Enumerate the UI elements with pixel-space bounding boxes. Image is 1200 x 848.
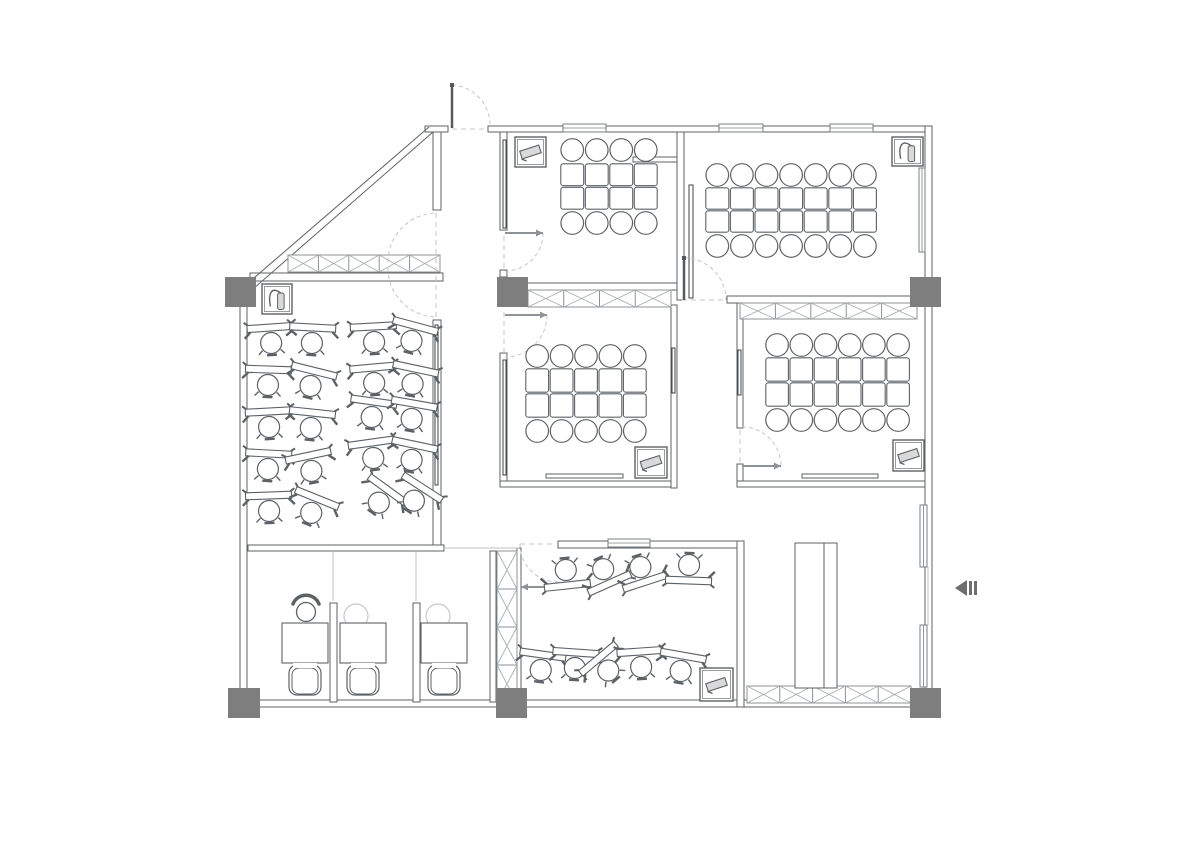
desk-unit — [539, 555, 594, 594]
chair — [550, 345, 573, 368]
chair — [561, 139, 584, 162]
office-desk — [340, 623, 386, 663]
desk-unit — [242, 488, 295, 524]
chair — [790, 409, 813, 432]
meeting-table — [561, 139, 657, 235]
desk-unit — [242, 404, 296, 441]
door-swing-arc — [520, 544, 558, 582]
chair — [814, 334, 837, 357]
meeting-table — [706, 164, 877, 258]
door-swing-arc — [742, 427, 781, 466]
chair — [804, 235, 827, 258]
whiteboard — [802, 474, 878, 478]
desk-unit — [347, 319, 401, 356]
casework-run — [288, 255, 440, 272]
office-chair — [289, 663, 321, 695]
desk-unit — [242, 362, 295, 398]
chair — [550, 420, 573, 443]
chair — [575, 420, 598, 443]
desk-unit — [285, 320, 339, 357]
column — [496, 688, 527, 718]
chair — [575, 345, 598, 368]
chair — [634, 212, 657, 235]
fire-extinguisher-box — [892, 137, 923, 166]
chair — [854, 235, 877, 258]
office-desk — [421, 623, 467, 663]
chair — [829, 164, 852, 187]
chair — [526, 420, 549, 443]
chair — [838, 409, 861, 432]
chair — [585, 139, 608, 162]
chair — [731, 235, 754, 258]
chair — [829, 235, 852, 258]
tv-box — [515, 137, 546, 167]
meeting-table — [526, 345, 646, 443]
chair — [599, 420, 622, 443]
column — [225, 277, 256, 307]
casework-run — [528, 290, 671, 307]
doors — [388, 83, 781, 591]
door-swing-arc — [505, 233, 543, 271]
tv-box — [700, 668, 733, 701]
chair — [766, 334, 789, 357]
chair — [755, 164, 778, 187]
chair — [854, 164, 877, 187]
entry-arrow — [955, 580, 977, 596]
chair — [706, 235, 729, 258]
desk-unit — [662, 552, 715, 588]
column — [228, 688, 260, 718]
chair — [526, 345, 549, 368]
chair — [863, 409, 886, 432]
column — [910, 688, 941, 718]
chair — [706, 164, 729, 187]
whiteboard — [546, 474, 623, 478]
chair — [561, 212, 584, 235]
door-swing-arc — [452, 85, 490, 126]
tv-box — [635, 447, 667, 478]
desk-unit — [284, 403, 339, 442]
chair — [887, 334, 910, 357]
chair — [610, 139, 633, 162]
casework-run — [497, 551, 517, 703]
office-chair — [428, 663, 460, 695]
casework-run — [740, 303, 917, 319]
chair — [755, 235, 778, 258]
chair — [766, 409, 789, 432]
offices — [282, 595, 467, 695]
chair — [624, 420, 647, 443]
shaft — [795, 543, 837, 688]
desk-unit — [574, 637, 636, 696]
desk-unit — [614, 643, 668, 681]
chair — [585, 212, 608, 235]
chair — [838, 334, 861, 357]
column — [497, 277, 528, 307]
chair — [634, 139, 657, 162]
chair — [804, 164, 827, 187]
phone — [293, 595, 319, 621]
floor-plan-svg — [0, 0, 1200, 848]
chair — [814, 409, 837, 432]
chair — [780, 235, 803, 258]
chair — [731, 164, 754, 187]
office-desk — [282, 623, 328, 663]
fire-extinguisher-box — [262, 284, 292, 314]
chair — [780, 164, 803, 187]
chair — [790, 334, 813, 357]
tv-box — [893, 440, 924, 471]
floor-plan-page — [0, 0, 1200, 848]
chair — [863, 334, 886, 357]
chair — [887, 409, 910, 432]
casework-run — [747, 686, 911, 703]
chair — [624, 345, 647, 368]
office-chair — [347, 663, 379, 695]
chair — [599, 345, 622, 368]
chair — [610, 212, 633, 235]
column — [910, 277, 941, 307]
entry-arrow-icon — [955, 580, 967, 596]
meeting-table — [766, 334, 910, 432]
